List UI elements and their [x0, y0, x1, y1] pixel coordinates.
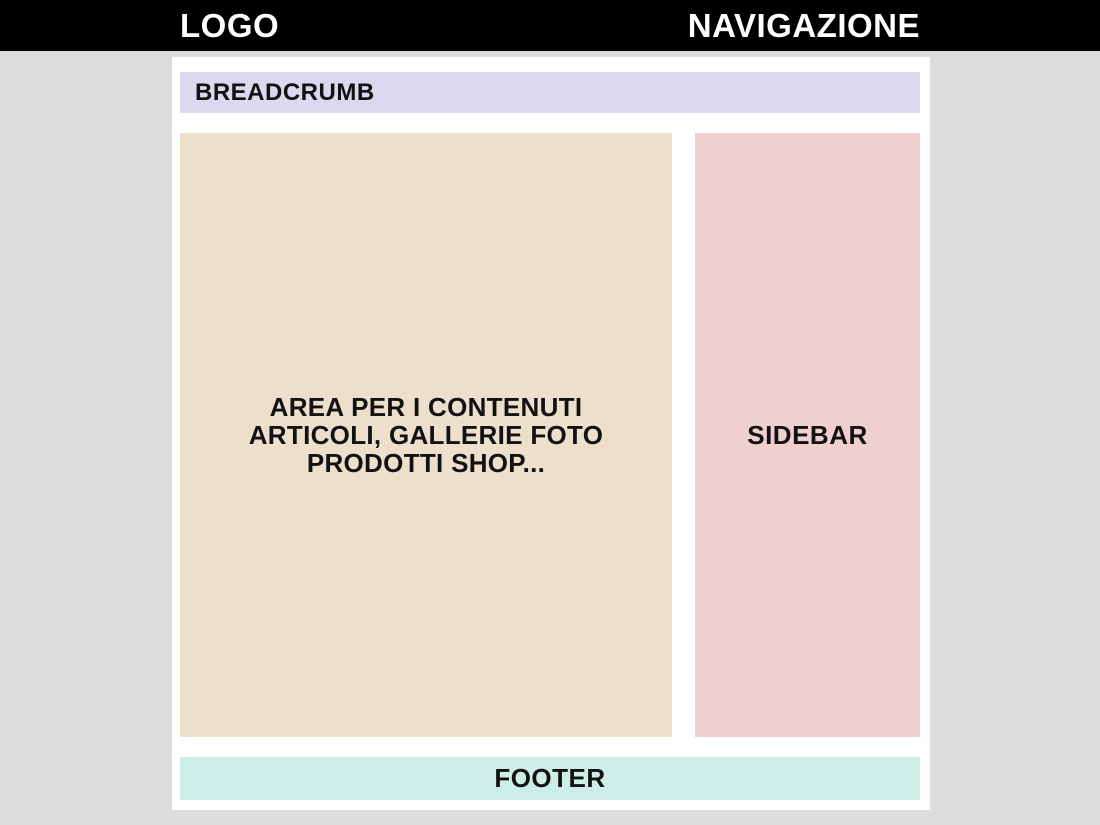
sidebar-label: SIDEBAR	[747, 420, 868, 451]
content-row: AREA PER I CONTENUTI ARTICOLI, GALLERIE …	[180, 133, 920, 737]
content-line-3: PRODOTTI SHOP...	[249, 449, 604, 477]
header-bar: LOGO NAVIGAZIONE	[0, 0, 1100, 51]
content-area: AREA PER I CONTENUTI ARTICOLI, GALLERIE …	[180, 133, 672, 737]
navigation-label: NAVIGAZIONE	[688, 0, 920, 51]
page-container: BREADCRUMB AREA PER I CONTENUTI ARTICOLI…	[172, 57, 930, 810]
content-area-label: AREA PER I CONTENUTI ARTICOLI, GALLERIE …	[249, 393, 604, 477]
footer-label: FOOTER	[494, 763, 605, 794]
layout-wireframe: LOGO NAVIGAZIONE BREADCRUMB AREA PER I C…	[0, 0, 1100, 825]
logo-label: LOGO	[180, 0, 279, 51]
sidebar-area: SIDEBAR	[695, 133, 920, 737]
breadcrumb-bar: BREADCRUMB	[180, 72, 920, 113]
breadcrumb-label: BREADCRUMB	[195, 79, 375, 107]
footer-bar: FOOTER	[180, 757, 920, 800]
content-line-1: AREA PER I CONTENUTI	[249, 393, 604, 421]
content-line-2: ARTICOLI, GALLERIE FOTO	[249, 421, 604, 449]
